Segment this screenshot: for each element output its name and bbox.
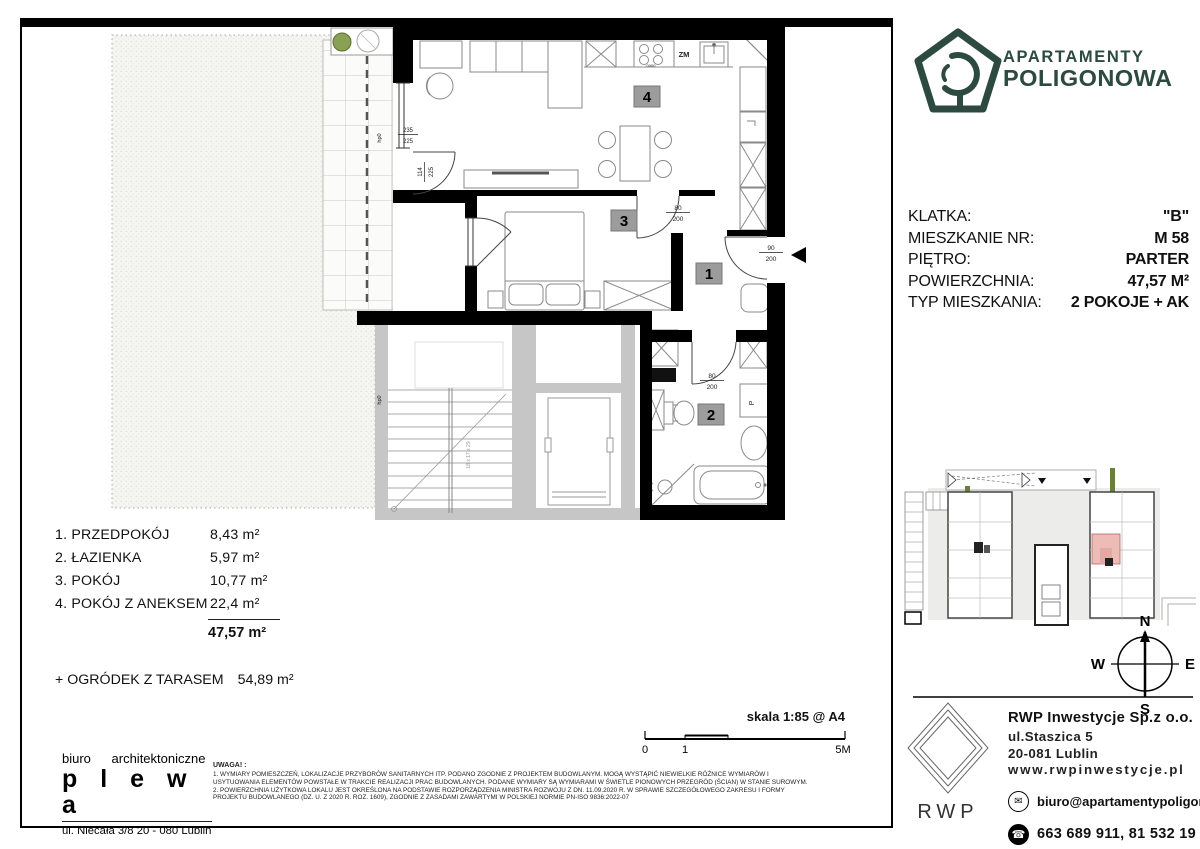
compass-n: N — [1140, 613, 1151, 630]
phone-row: ☎ 663 689 911, 81 532 19 66 — [1008, 824, 1198, 845]
site-minimap — [905, 468, 1196, 626]
scale-label: skala 1:85 @ A4 — [645, 709, 845, 724]
brand-line2: POLIGONOWA — [1003, 66, 1173, 92]
room-row-3: 3. POKÓJ 10,77 m² — [55, 573, 295, 589]
company-street: ul.Staszica 5 — [1008, 729, 1198, 746]
total-area: 47,57 m² — [208, 619, 280, 641]
rwp-logo-text: RWP — [917, 801, 978, 823]
company-name: RWP Inwestycje Sp.z o.o. — [1008, 710, 1198, 726]
north-arrow-icon — [1140, 630, 1150, 642]
architect-line1: biuro architektoniczne — [62, 751, 214, 766]
brand-logo: APARTAMENTY POLIGONOWA — [1003, 48, 1173, 92]
page-border-frame — [20, 18, 893, 828]
floorplan-document: { "brand": {"line1": "APARTAMENTY", "lin… — [0, 0, 1200, 849]
minimap-building-right — [1090, 492, 1154, 618]
phone-icon: ☎ — [1008, 824, 1029, 845]
detail-row-mieszkanie: MIESZKANIE NR: M 58 — [908, 230, 1189, 248]
mail-icon: ✉ — [1008, 791, 1029, 812]
compass-w: W — [1091, 656, 1106, 673]
detail-row-klatka: KLATKA: "B" — [908, 208, 1189, 226]
architect-name: p l e w a — [62, 766, 214, 819]
architect-address: ul. Niecała 3/8 20 - 080 Lublin — [62, 825, 214, 837]
garden-area-row: + OGRÓDEK Z TARASEM 54,89 m² — [55, 672, 294, 688]
room-list: 1. PRZEDPOKÓJ 8,43 m² 2. ŁAZIENKA 5,97 m… — [55, 527, 295, 641]
apartment-details: KLATKA: "B" MIESZKANIE NR: M 58 PIĘTRO: … — [908, 208, 1189, 316]
company-website: www.rwpinwestycje.pl — [1008, 762, 1198, 779]
room-row-1: 1. PRZEDPOKÓJ 8,43 m² — [55, 527, 295, 543]
room-row-4: 4. POKÓJ Z ANEKSEM 22,4 m² — [55, 596, 295, 612]
email-address: biuro@apartamentypoligonowa.pl — [1037, 794, 1200, 809]
compass-e: E — [1185, 656, 1195, 673]
brand-pentagon-icon — [912, 26, 1004, 120]
notes-title: UWAGA! : — [213, 762, 808, 769]
notes-block: UWAGA! : 1. WYMIARY POMIESZCZEŃ, LOKALIZ… — [213, 762, 808, 802]
company-city: 20-081 Lublin — [1008, 746, 1198, 763]
email-row: ✉ biuro@apartamentypoligonowa.pl — [1008, 791, 1198, 812]
architect-rule — [62, 821, 212, 822]
architect-block: biuro architektoniczne p l e w a ul. Nie… — [62, 751, 214, 837]
compass: N S W E — [1091, 613, 1195, 718]
detail-row-typ: TYP MIESZKANIA: 2 POKOJE + AK — [908, 294, 1189, 312]
brand-line1: APARTAMENTY — [1003, 48, 1173, 66]
minimap-building-left — [948, 492, 1012, 618]
rwp-logo: RWP — [908, 703, 988, 823]
detail-row-pietro: PIĘTRO: PARTER — [908, 251, 1189, 269]
phone-numbers: 663 689 911, 81 532 19 66 — [1037, 826, 1200, 842]
developer-contact: RWP Inwestycje Sp.z o.o. ul.Staszica 5 2… — [1008, 710, 1198, 845]
detail-row-powierzchnia: POWIERZCHNIA: 47,57 M² — [908, 273, 1189, 291]
room-row-2: 2. ŁAZIENKA 5,97 m² — [55, 550, 295, 566]
